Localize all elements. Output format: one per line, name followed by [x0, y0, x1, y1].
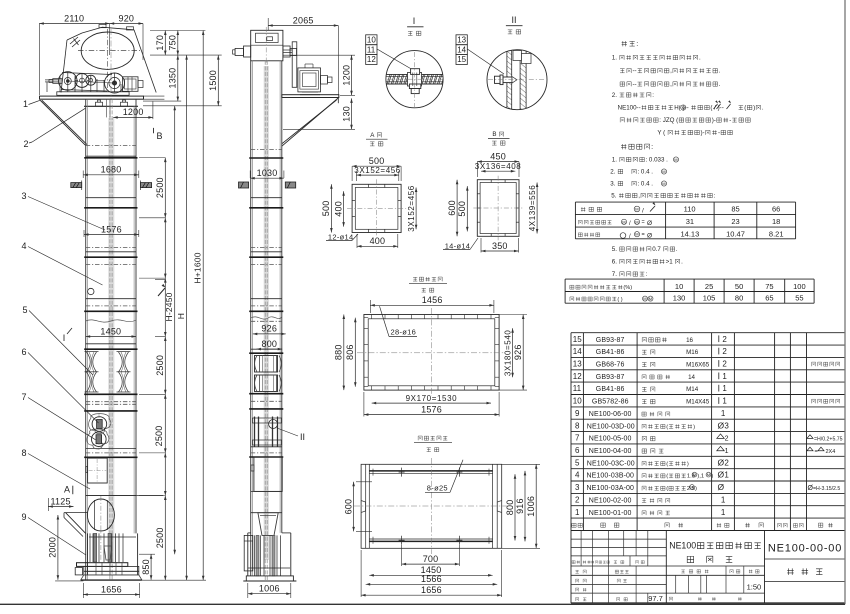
- svg-text:: 0.033 .: : 0.033 .: [646, 157, 669, 164]
- svg-text:1.: 1.: [612, 157, 617, 164]
- svg-text:II: II: [512, 15, 517, 25]
- svg-text:1.: 1.: [612, 55, 617, 62]
- svg-text:66: 66: [772, 205, 780, 214]
- svg-text:2: 2: [722, 347, 727, 356]
- svg-text:( ): ( ): [617, 297, 622, 303]
- svg-text:2110: 2110: [64, 13, 84, 23]
- svg-text:1: 1: [721, 409, 726, 418]
- svg-text:1: 1: [722, 384, 727, 393]
- svg-text:NE100-03B-00: NE100-03B-00: [587, 473, 635, 480]
- svg-text:1200: 1200: [123, 107, 144, 117]
- svg-text::: :: [651, 142, 653, 151]
- svg-text:.: .: [681, 259, 683, 266]
- svg-text:2000: 2000: [48, 537, 58, 558]
- svg-text:NE100-01-00: NE100-01-00: [589, 510, 632, 517]
- svg-text:880: 880: [334, 344, 344, 360]
- svg-text:5: 5: [575, 458, 580, 467]
- svg-text:14: 14: [688, 374, 695, 381]
- svg-text:H: H: [176, 313, 186, 319]
- svg-text:1450: 1450: [100, 326, 121, 336]
- svg-text:NE100--: NE100--: [618, 105, 641, 112]
- svg-text:75: 75: [765, 282, 773, 291]
- svg-text:M: M: [649, 296, 652, 301]
- svg-text:1350: 1350: [168, 68, 178, 89]
- svg-text:,: ,: [670, 81, 672, 88]
- svg-text:15: 15: [457, 55, 466, 64]
- svg-text:8: 8: [575, 421, 580, 430]
- svg-text:Ø: Ø: [647, 233, 652, 240]
- svg-text:NE100-03C-00: NE100-03C-00: [587, 460, 635, 467]
- svg-text:5: 5: [23, 305, 28, 315]
- svg-text:: 0.4 .: : 0.4 .: [638, 169, 654, 176]
- svg-text:400: 400: [333, 201, 343, 217]
- svg-text:1030: 1030: [257, 168, 278, 178]
- svg-text:M: M: [635, 232, 638, 237]
- svg-text:13: 13: [457, 35, 466, 44]
- svg-text:I: I: [413, 16, 416, 26]
- svg-text::: :: [714, 193, 716, 200]
- svg-text:1680: 1680: [101, 165, 122, 175]
- svg-text:2065: 2065: [293, 15, 314, 25]
- svg-text:.: .: [699, 55, 701, 62]
- svg-text:926: 926: [513, 344, 523, 360]
- svg-text:12: 12: [367, 55, 376, 64]
- svg-text:1: 1: [724, 471, 729, 480]
- svg-text:8.21: 8.21: [769, 229, 784, 238]
- svg-text:800: 800: [262, 339, 278, 349]
- svg-text:105: 105: [703, 294, 716, 303]
- svg-text::: :: [636, 39, 638, 48]
- svg-text:1: 1: [721, 508, 726, 517]
- svg-text:3X152=456: 3X152=456: [354, 166, 401, 175]
- svg-text:--: --: [633, 68, 637, 75]
- svg-text:1: 1: [23, 99, 28, 109]
- svg-text:M: M: [622, 219, 625, 224]
- svg-text:,: ,: [670, 68, 672, 75]
- svg-text:2: 2: [722, 335, 727, 344]
- svg-text:-: -: [718, 130, 720, 137]
- svg-text:85: 85: [731, 205, 739, 214]
- svg-text:500: 500: [321, 201, 331, 217]
- svg-text::: :: [652, 92, 654, 99]
- svg-text:: JZQ (: : JZQ (: [659, 117, 679, 124]
- svg-text:5.: 5.: [612, 246, 617, 253]
- svg-text:65: 65: [765, 294, 773, 303]
- svg-text:2: 2: [24, 139, 29, 149]
- svg-text:80: 80: [735, 294, 743, 303]
- svg-text:750: 750: [168, 35, 178, 51]
- svg-text:1125: 1125: [51, 496, 71, 506]
- svg-text:NE100-03A-00: NE100-03A-00: [587, 485, 635, 492]
- svg-text:4: 4: [575, 471, 580, 480]
- svg-text:(: (: [666, 486, 668, 492]
- svg-text:NE100-06-00: NE100-06-00: [589, 411, 632, 418]
- svg-text:400: 400: [370, 236, 386, 246]
- svg-text:1006: 1006: [526, 496, 536, 517]
- svg-text:2500: 2500: [155, 355, 165, 376]
- svg-text:11: 11: [367, 45, 376, 54]
- svg-text:(: (: [666, 424, 668, 430]
- svg-text:10: 10: [675, 282, 683, 291]
- svg-text:926: 926: [261, 324, 277, 334]
- svg-text:1200: 1200: [341, 65, 351, 86]
- svg-text:10: 10: [573, 397, 582, 406]
- svg-text:1: 1: [725, 448, 729, 455]
- svg-text:3: 3: [575, 483, 580, 492]
- svg-text:806: 806: [345, 344, 355, 360]
- svg-text:2: 2: [575, 495, 580, 504]
- svg-text:916: 916: [515, 498, 525, 514]
- svg-text:2: 2: [724, 458, 729, 467]
- svg-text::: :: [646, 271, 648, 278]
- svg-text:1566: 1566: [421, 574, 442, 584]
- svg-text:): ): [693, 424, 695, 430]
- svg-text:3X152=456: 3X152=456: [407, 185, 416, 232]
- svg-text:0.7: 0.7: [652, 246, 661, 253]
- svg-text:.: .: [762, 105, 764, 112]
- svg-text:M: M: [707, 472, 710, 477]
- svg-text:1:50: 1:50: [747, 583, 762, 592]
- svg-text:1576: 1576: [421, 404, 442, 414]
- svg-text:50: 50: [735, 282, 743, 291]
- svg-text:-: -: [729, 117, 731, 124]
- svg-text:Y (: Y (: [657, 130, 666, 137]
- svg-text:97.7: 97.7: [648, 594, 663, 603]
- svg-text:13: 13: [573, 360, 582, 369]
- svg-text:1: 1: [721, 495, 726, 504]
- svg-text:.: .: [719, 81, 721, 88]
- svg-text:130: 130: [341, 106, 351, 122]
- svg-text:9: 9: [22, 512, 27, 522]
- svg-text:1: 1: [722, 397, 727, 406]
- svg-text:M: M: [662, 169, 665, 174]
- svg-text:600: 600: [447, 200, 457, 216]
- svg-text:M: M: [690, 485, 693, 490]
- svg-text:M: M: [643, 296, 646, 301]
- svg-text:170: 170: [155, 35, 165, 51]
- svg-text:2500: 2500: [154, 426, 164, 447]
- svg-text:500: 500: [369, 156, 385, 166]
- svg-text:55: 55: [795, 294, 803, 303]
- svg-text:7: 7: [22, 392, 27, 402]
- svg-text:(: (: [666, 474, 668, 480]
- svg-text:1456: 1456: [422, 295, 443, 305]
- svg-text:M: M: [635, 207, 638, 212]
- svg-text:14.13: 14.13: [681, 229, 700, 238]
- svg-text:1656: 1656: [101, 584, 122, 594]
- svg-text:10: 10: [367, 35, 376, 44]
- svg-text:B: B: [157, 131, 163, 141]
- svg-text:,: ,: [638, 193, 640, 200]
- svg-text:600: 600: [343, 499, 353, 515]
- svg-text:25: 25: [705, 282, 713, 291]
- svg-text:M16: M16: [686, 349, 699, 356]
- svg-text:6.: 6.: [612, 259, 617, 266]
- svg-text:M: M: [693, 472, 696, 477]
- svg-text:8-ø25: 8-ø25: [427, 483, 448, 492]
- svg-text:GB68-76: GB68-76: [596, 362, 625, 369]
- svg-text:): ): [753, 105, 755, 112]
- svg-text:10.47: 10.47: [726, 229, 745, 238]
- svg-text:GB5782-86: GB5782-86: [592, 399, 629, 406]
- svg-text:6: 6: [22, 347, 27, 357]
- svg-text:H-2450: H-2450: [164, 292, 174, 321]
- svg-text:28-ø16: 28-ø16: [391, 328, 417, 337]
- svg-text:GB93-87: GB93-87: [596, 374, 625, 381]
- svg-text:500: 500: [457, 201, 467, 217]
- svg-text:)-: )-: [712, 117, 716, 124]
- svg-text:15: 15: [573, 335, 582, 344]
- svg-text:=: =: [815, 449, 818, 455]
- svg-text:1656: 1656: [421, 585, 442, 595]
- svg-text:9: 9: [575, 409, 580, 418]
- svg-text:1500: 1500: [208, 70, 218, 91]
- svg-text:B: B: [492, 131, 496, 138]
- svg-text:2500: 2500: [155, 527, 165, 548]
- svg-text:2: 2: [725, 436, 729, 443]
- svg-text:2.: 2.: [612, 92, 617, 99]
- svg-text:700: 700: [423, 554, 439, 564]
- svg-text:16: 16: [686, 337, 693, 344]
- svg-text:2X4: 2X4: [826, 449, 836, 455]
- svg-text:850: 850: [141, 559, 151, 575]
- svg-text:14-ø14: 14-ø14: [445, 241, 471, 250]
- svg-text:>1: >1: [666, 259, 674, 266]
- svg-text:12-ø14: 12-ø14: [328, 232, 354, 241]
- svg-text:H+1600: H+1600: [193, 252, 203, 283]
- svg-text:NE100: NE100: [669, 541, 696, 551]
- svg-text:)-: )-: [701, 130, 705, 137]
- svg-text:: 0.4 .: : 0.4 .: [638, 181, 654, 188]
- svg-text:I: I: [63, 333, 66, 343]
- svg-text:1: 1: [722, 372, 727, 381]
- svg-text:NE100-04-00: NE100-04-00: [589, 448, 632, 455]
- svg-text:(%): (%): [623, 285, 632, 291]
- svg-text:GB41-86: GB41-86: [596, 349, 625, 356]
- svg-text:NE100-02-00: NE100-02-00: [589, 497, 632, 504]
- svg-text:12: 12: [573, 372, 582, 381]
- svg-text:),1: ),1: [697, 474, 704, 480]
- svg-text:NE100-05-00: NE100-05-00: [589, 436, 632, 443]
- svg-text:450: 450: [490, 151, 506, 161]
- svg-text:4: 4: [22, 241, 27, 251]
- svg-text:=H/0.2+5.75: =H/0.2+5.75: [814, 437, 843, 443]
- svg-text:): ): [711, 474, 713, 480]
- svg-text:3: 3: [724, 421, 729, 430]
- svg-text:3X136=408: 3X136=408: [475, 162, 522, 171]
- svg-text:=: =: [642, 220, 645, 226]
- svg-text:8: 8: [22, 448, 27, 458]
- svg-text:M14X45: M14X45: [686, 399, 710, 406]
- svg-text:11: 11: [573, 384, 582, 393]
- svg-text:2.: 2.: [610, 169, 615, 176]
- svg-text:(: (: [666, 461, 668, 467]
- svg-text:NE100-00-00: NE100-00-00: [768, 543, 842, 555]
- svg-text:7: 7: [575, 434, 580, 443]
- svg-text:.: .: [676, 246, 678, 253]
- svg-text:110: 110: [684, 205, 696, 214]
- svg-text:): ): [695, 486, 697, 492]
- svg-text:3X180=540: 3X180=540: [503, 330, 512, 377]
- svg-text:II: II: [300, 432, 305, 442]
- svg-text:1: 1: [575, 508, 580, 517]
- svg-text:M: M: [635, 219, 638, 224]
- svg-text:9X170=1530: 9X170=1530: [406, 394, 458, 403]
- svg-text:2500: 2500: [155, 177, 165, 198]
- svg-text:GB41-86: GB41-86: [596, 386, 625, 393]
- svg-text:=H-3.15/2.5: =H-3.15/2.5: [813, 486, 840, 492]
- svg-text:M: M: [662, 181, 665, 186]
- svg-text:2: 2: [722, 360, 727, 369]
- svg-text:Ø: Ø: [647, 220, 652, 227]
- svg-text:7.: 7.: [612, 271, 617, 278]
- svg-text:23: 23: [731, 217, 739, 226]
- svg-text:Ø: Ø: [718, 482, 725, 492]
- svg-text:350: 350: [492, 241, 508, 251]
- svg-text:M: M: [682, 105, 685, 110]
- svg-text:M16X65: M16X65: [686, 362, 710, 369]
- svg-text:800: 800: [505, 500, 515, 516]
- svg-text:): ): [687, 461, 689, 467]
- svg-text:3.: 3.: [610, 181, 615, 188]
- svg-text:14: 14: [457, 45, 466, 54]
- svg-text:=: =: [642, 232, 645, 238]
- svg-text:3: 3: [22, 191, 27, 201]
- svg-text:A: A: [64, 485, 70, 495]
- svg-text:.: .: [719, 68, 721, 75]
- svg-text:M14: M14: [686, 386, 699, 393]
- svg-text:1006: 1006: [259, 584, 280, 594]
- svg-text:NE100-03D-00: NE100-03D-00: [587, 423, 635, 430]
- svg-text:18: 18: [772, 217, 780, 226]
- svg-text:6: 6: [575, 446, 580, 455]
- svg-text:--: --: [633, 81, 637, 88]
- svg-text:100: 100: [793, 282, 806, 291]
- svg-text:M: M: [674, 157, 677, 162]
- svg-text:/: /: [642, 208, 644, 215]
- svg-text:130: 130: [673, 294, 686, 303]
- svg-text:GB93-87: GB93-87: [596, 337, 625, 344]
- svg-text:31: 31: [686, 217, 694, 226]
- svg-text:4X139=556: 4X139=556: [528, 185, 537, 232]
- svg-text:14: 14: [573, 347, 582, 356]
- svg-text:920: 920: [119, 13, 135, 23]
- svg-text:5.: 5.: [611, 193, 616, 200]
